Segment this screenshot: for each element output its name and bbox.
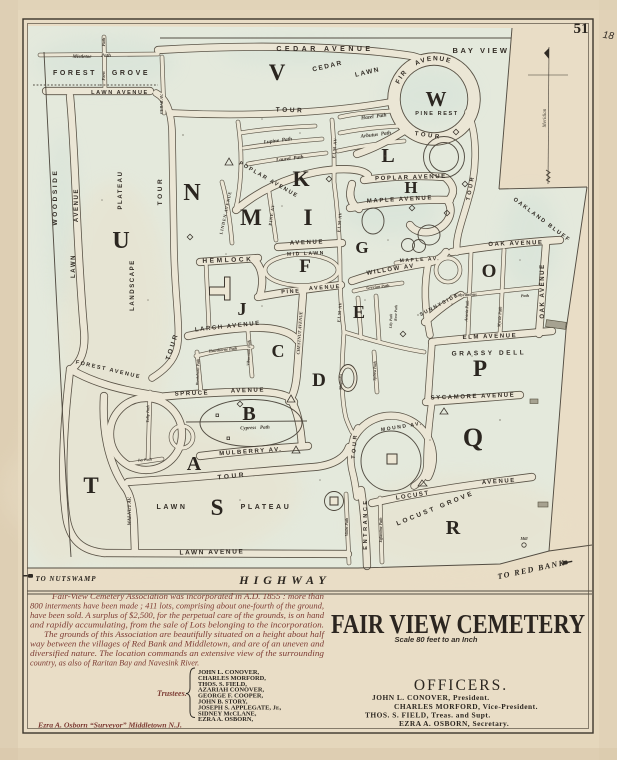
svg-text:JOHN L. CONOVER, President.: JOHN L. CONOVER, President. — [372, 693, 490, 702]
svg-text:Magnolia: Magnolia — [338, 374, 344, 391]
svg-text:Eglantine Path: Eglantine Path — [378, 517, 383, 544]
svg-text:Spirea Path: Spirea Path — [372, 360, 378, 380]
svg-text:EZRA A. OSBORN, Secretary.: EZRA A. OSBORN, Secretary. — [399, 719, 509, 728]
svg-text:PINE REST: PINE REST — [415, 111, 458, 117]
svg-text:L: L — [381, 145, 394, 167]
svg-text:Path: Path — [101, 54, 111, 59]
svg-text:GROVE: GROVE — [112, 70, 150, 77]
svg-text:AVENUE: AVENUE — [290, 239, 324, 246]
svg-text:E: E — [353, 302, 365, 322]
svg-text:have been sold. A surplus of: have been sold. A surplus of $2,500, for… — [30, 611, 325, 620]
svg-text:W: W — [426, 87, 447, 111]
svg-text:TO NUTSWAMP: TO NUTSWAMP — [35, 575, 96, 583]
svg-text:G: G — [355, 238, 368, 257]
svg-text:Mill: Mill — [520, 536, 529, 541]
svg-text:country, as also of Raritan Ba: country, as also of Raritan Bay and Nave… — [30, 659, 199, 668]
svg-text:Scale 80 feet to an Inch: Scale 80 feet to an Inch — [395, 635, 478, 644]
svg-text:FOREST: FOREST — [53, 70, 97, 77]
svg-text:LAWN: LAWN — [156, 504, 187, 511]
svg-text:CEDAR AVENUE: CEDAR AVENUE — [276, 46, 373, 53]
svg-text:Cypress Path: Cypress Path — [240, 425, 270, 431]
svg-text:Violet Path: Violet Path — [344, 517, 349, 536]
svg-text:PLATEAU: PLATEAU — [241, 504, 292, 511]
svg-text:Lily Path: Lily Path — [389, 314, 394, 330]
svg-text:LAWN AVENUE: LAWN AVENUE — [179, 548, 244, 556]
svg-text:C: C — [272, 341, 285, 361]
svg-text:K: K — [292, 166, 309, 191]
svg-text:Meridian: Meridian — [543, 108, 548, 128]
svg-text:Mistletoe: Mistletoe — [72, 55, 93, 60]
svg-text:I: I — [304, 205, 313, 230]
svg-text:800 interments have been made: 800 interments have been made ; 411 lots… — [30, 602, 324, 611]
svg-text:A: A — [187, 453, 202, 475]
svg-text:WOODSIDE: WOODSIDE — [52, 169, 59, 226]
svg-text:Q: Q — [463, 423, 483, 452]
svg-text:BAY VIEW: BAY VIEW — [452, 46, 509, 55]
svg-text:Tulip Path: Tulip Path — [145, 404, 151, 422]
svg-text:18: 18 — [602, 30, 615, 43]
svg-text:The grounds of this Associatio: The grounds of this Association are beau… — [44, 630, 326, 639]
svg-text:diversified nature. The locat: diversified nature. The location command… — [30, 649, 324, 658]
svg-text:CEDAR AV.: CEDAR AV. — [159, 94, 164, 114]
svg-text:M: M — [240, 205, 262, 230]
svg-text:EZRA A. OSBORN,: EZRA A. OSBORN, — [198, 716, 253, 723]
svg-text:B: B — [242, 403, 255, 425]
svg-text:V: V — [269, 60, 286, 85]
svg-text:Trustees.: Trustees. — [157, 689, 187, 698]
svg-text:WALNUT AV.: WALNUT AV. — [128, 497, 133, 526]
svg-text:S: S — [211, 495, 224, 520]
svg-text:LANDSCAPE: LANDSCAPE — [130, 259, 136, 311]
svg-text:Fern: Fern — [101, 71, 106, 81]
svg-text:way between the villages of Re: way between the villages of Red Bank and… — [30, 640, 325, 649]
svg-text:J: J — [238, 299, 247, 319]
svg-text:D: D — [312, 370, 326, 391]
svg-text:Fair-View Cemetery Association: Fair-View Cemetery Association was incor… — [51, 592, 324, 601]
svg-text:U: U — [112, 228, 129, 254]
svg-text:Path: Path — [101, 37, 106, 46]
svg-text:LAWN AVENUE: LAWN AVENUE — [91, 90, 149, 96]
svg-text:51: 51 — [574, 21, 589, 37]
svg-text:Buckthorn Path: Buckthorn Path — [195, 358, 201, 386]
svg-text:AVENUE: AVENUE — [231, 387, 265, 394]
svg-text:HIGHWAY: HIGHWAY — [238, 573, 330, 587]
svg-text:AVENUE: AVENUE — [74, 188, 80, 222]
svg-text:O: O — [482, 261, 497, 282]
svg-text:OFFICERS.: OFFICERS. — [414, 677, 508, 694]
svg-text:TOUR: TOUR — [276, 107, 305, 115]
svg-text:TOUR: TOUR — [157, 177, 164, 206]
svg-text:OAK AVENUE: OAK AVENUE — [540, 263, 546, 318]
svg-text:GRASSY DELL: GRASSY DELL — [452, 349, 527, 357]
svg-text:PLATEAU: PLATEAU — [118, 170, 124, 209]
svg-text:SPRUCE: SPRUCE — [175, 390, 210, 397]
svg-text:Rose Path: Rose Path — [394, 305, 399, 321]
svg-text:and rapidly accumulating, from: and rapidly accumulating, from the sale … — [30, 621, 324, 630]
svg-text:Calycanthus: Calycanthus — [455, 292, 477, 298]
svg-text:LAWN: LAWN — [71, 254, 77, 278]
svg-text:R: R — [446, 517, 461, 539]
svg-text:N: N — [183, 180, 201, 206]
svg-text:F: F — [299, 256, 311, 277]
svg-text:ENTRANCE: ENTRANCE — [363, 498, 369, 549]
svg-text:Path: Path — [521, 293, 530, 298]
svg-text:P: P — [473, 356, 487, 381]
svg-text:T: T — [83, 473, 98, 498]
